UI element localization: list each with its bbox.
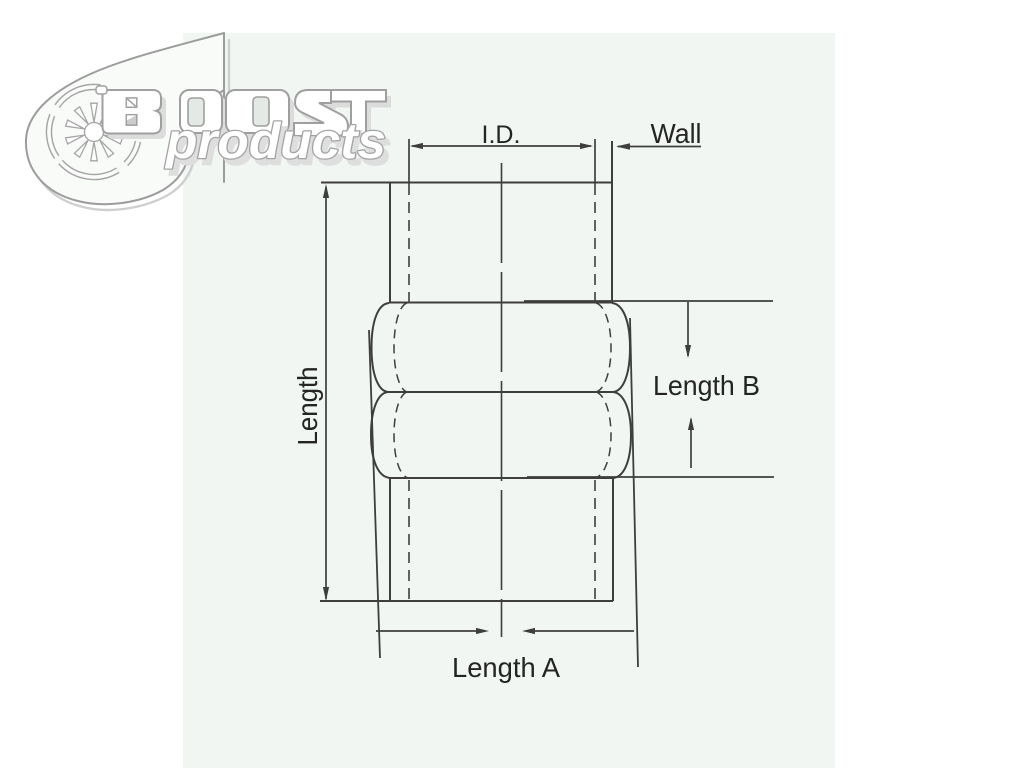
- svg-text:Length A: Length A: [452, 652, 560, 683]
- svg-text:Length: Length: [292, 367, 323, 446]
- svg-text:products: products: [164, 113, 386, 169]
- svg-text:I.D.: I.D.: [482, 121, 521, 149]
- svg-text:Length B: Length B: [653, 370, 760, 401]
- svg-text:Wall: Wall: [651, 118, 702, 149]
